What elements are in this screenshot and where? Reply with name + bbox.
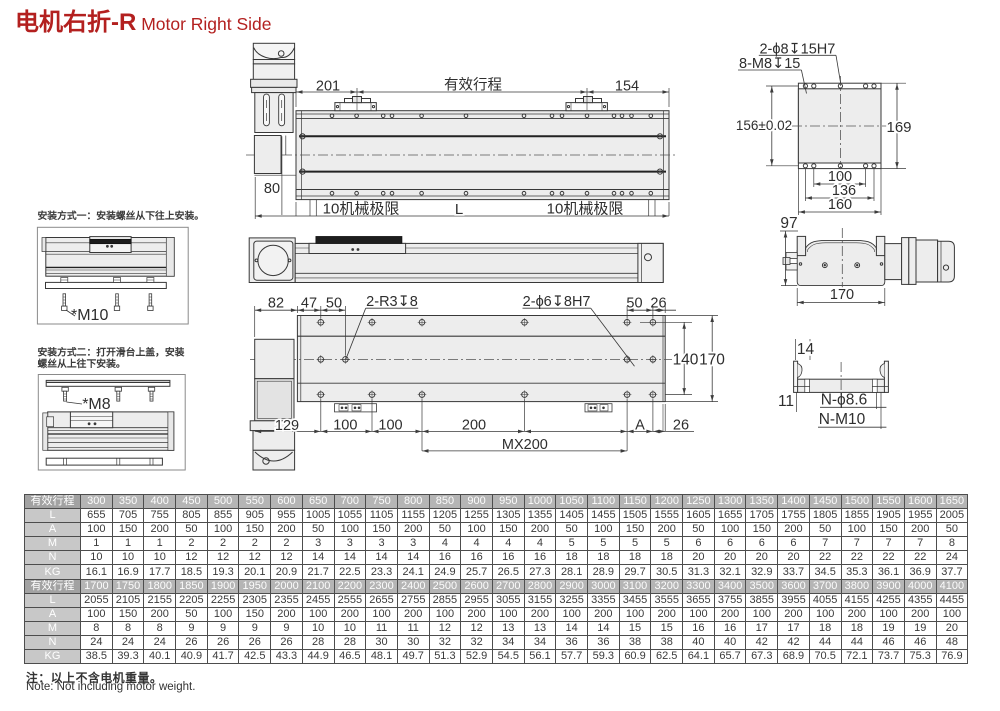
svg-text:10机械极限: 10机械极限 [547,201,624,218]
svg-text:有效行程: 有效行程 [444,77,502,94]
svg-text:螺丝从上往下安装。: 螺丝从上往下安装。 [38,357,126,370]
svg-text:82: 82 [268,296,284,312]
svg-text:2-ϕ6↧8H7: 2-ϕ6↧8H7 [523,294,591,310]
svg-text:80: 80 [264,181,280,197]
svg-text:140: 140 [673,352,699,369]
svg-text:200: 200 [462,418,486,434]
svg-text:26: 26 [650,296,666,312]
svg-text:50: 50 [326,296,342,312]
svg-text:A: A [635,418,645,434]
svg-text:154: 154 [615,78,639,94]
svg-text:160: 160 [828,197,852,213]
svg-text:100: 100 [378,418,402,434]
svg-text:156±0.02: 156±0.02 [736,118,792,133]
svg-text:安装方式二：打开滑台上盖，安装: 安装方式二：打开滑台上盖，安装 [38,346,185,359]
svg-text:201: 201 [316,78,340,94]
svg-text:97: 97 [780,215,797,232]
svg-text:11: 11 [778,393,794,410]
svg-text:*M10: *M10 [71,307,108,324]
svg-text:*M8: *M8 [82,396,111,413]
svg-text:N-M10: N-M10 [819,411,866,428]
svg-text:14: 14 [797,341,815,358]
svg-text:2-R3↧8: 2-R3↧8 [366,294,418,310]
svg-text:26: 26 [673,418,689,434]
svg-text:129: 129 [275,418,299,434]
svg-text:10机械极限: 10机械极限 [323,201,400,218]
svg-text:N-ϕ8.6: N-ϕ8.6 [821,392,868,409]
svg-text:MX200: MX200 [502,437,548,453]
svg-text:100: 100 [333,418,357,434]
svg-text:安装方式一：安装螺丝从下往上安装。: 安装方式一：安装螺丝从下往上安装。 [38,209,205,222]
svg-text:47: 47 [301,296,317,312]
svg-text:169: 169 [886,119,911,136]
svg-text:170: 170 [830,287,854,303]
svg-text:170: 170 [699,352,725,369]
svg-text:50: 50 [626,296,642,312]
svg-text:L: L [455,201,463,218]
